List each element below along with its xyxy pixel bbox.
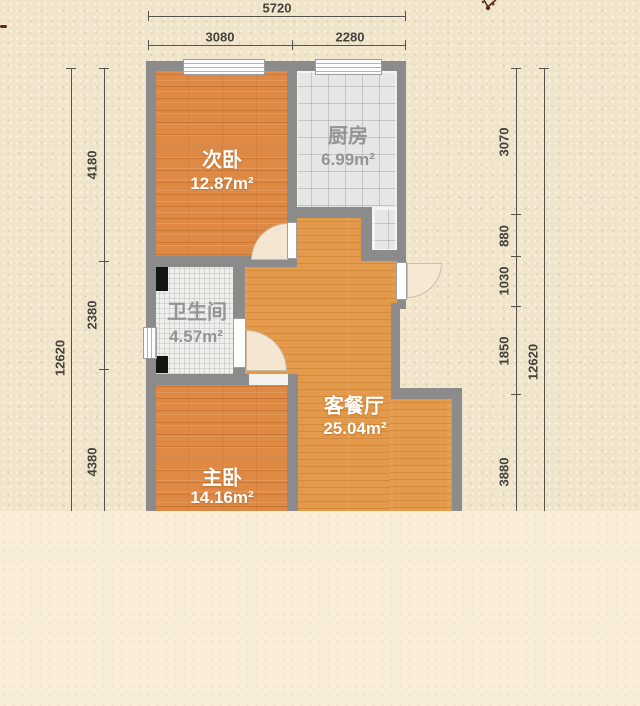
dim-line-top-segments — [148, 45, 406, 46]
wall-nook-west — [361, 207, 372, 252]
wall-east — [452, 395, 462, 511]
dim-tick — [539, 68, 549, 69]
dim-tick — [511, 214, 521, 215]
bedroom2-window — [183, 59, 265, 75]
wall-bathroom-right-upper — [233, 267, 245, 320]
dim-label-left-seg3: 4380 — [85, 448, 100, 477]
dim-tick — [99, 261, 109, 262]
room-label-secondary-bedroom: 次卧 — [202, 144, 242, 173]
dim-label-right-seg4: 1850 — [497, 337, 512, 366]
dim-tick — [292, 40, 293, 50]
dim-tick — [66, 68, 76, 69]
dim-tick — [99, 68, 109, 69]
floorplan-drawing: 次卧 12.87m² 厨房 6.99m² 卫生间 4.57m² 客餐厅 25.0… — [0, 0, 640, 511]
master-bedroom-doorway — [249, 374, 288, 385]
kitchen-window — [315, 59, 382, 75]
dim-tick — [405, 40, 406, 50]
dim-line-left-inner — [104, 68, 105, 511]
dim-tick — [511, 394, 521, 395]
floorplan-screenshot: 次卧 12.87m² 厨房 6.99m² 卫生间 4.57m² 客餐厅 25.0… — [0, 0, 640, 706]
wall-kitchen-right — [397, 61, 406, 261]
dim-label-right-total: 12620 — [526, 344, 541, 380]
dim-label-top-total: 5720 — [263, 1, 292, 16]
dim-tick — [148, 11, 149, 21]
kitchen-nook-floor — [371, 206, 399, 253]
room-label-living-dining: 客餐厅 — [324, 390, 384, 419]
dim-label-top-seg2: 2280 — [336, 30, 365, 45]
wall-kitchen-bottom — [287, 207, 363, 218]
dim-tick — [511, 256, 521, 257]
dim-label-left-seg1: 4180 — [85, 151, 100, 180]
living-dining-floor-east — [390, 395, 453, 511]
dim-label-left-total: 12620 — [53, 340, 68, 376]
room-label-kitchen: 厨房 — [328, 120, 368, 149]
dim-label-top-seg1: 3080 — [206, 30, 235, 45]
room-area-master-bedroom: 14.16m² — [190, 488, 253, 508]
dim-line-left-outer — [71, 68, 72, 511]
dim-line-right-outer — [544, 68, 545, 511]
dim-tick — [511, 306, 521, 307]
dim-label-right-seg2: 880 — [497, 225, 512, 247]
wall-divider-master-living — [287, 383, 298, 511]
bedroom2-door-leaf — [287, 222, 297, 259]
dim-tick — [405, 11, 406, 21]
entry-door-leaf — [396, 262, 407, 300]
room-area-living-dining: 25.04m² — [323, 419, 386, 439]
entry-door-swing-arc — [407, 263, 442, 298]
dim-tick — [148, 40, 149, 50]
room-area-bathroom: 4.57m² — [169, 327, 223, 347]
lower-background — [0, 511, 640, 706]
room-area-kitchen: 6.99m² — [321, 150, 375, 170]
dim-tick — [99, 369, 109, 370]
dim-tick — [511, 68, 521, 69]
dim-label-right-seg5: 3880 — [497, 458, 512, 487]
dim-line-top-total — [148, 16, 406, 17]
room-area-secondary-bedroom: 12.87m² — [190, 174, 253, 194]
wall-divider-bedroom2-kitchen — [287, 71, 297, 223]
dim-label-right-seg1: 3070 — [497, 128, 512, 157]
bathroom-door-leaf — [233, 318, 246, 368]
wall-right-jog — [391, 303, 400, 393]
bathroom-window — [143, 327, 157, 359]
dim-label-right-seg3: 1030 — [497, 267, 512, 296]
room-label-bathroom: 卫生间 — [167, 296, 227, 325]
dim-label-left-seg2: 2380 — [85, 301, 100, 330]
wall-left — [146, 61, 156, 511]
room-label-master-bedroom: 主卧 — [202, 462, 242, 491]
dim-line-right-inner — [516, 68, 517, 511]
